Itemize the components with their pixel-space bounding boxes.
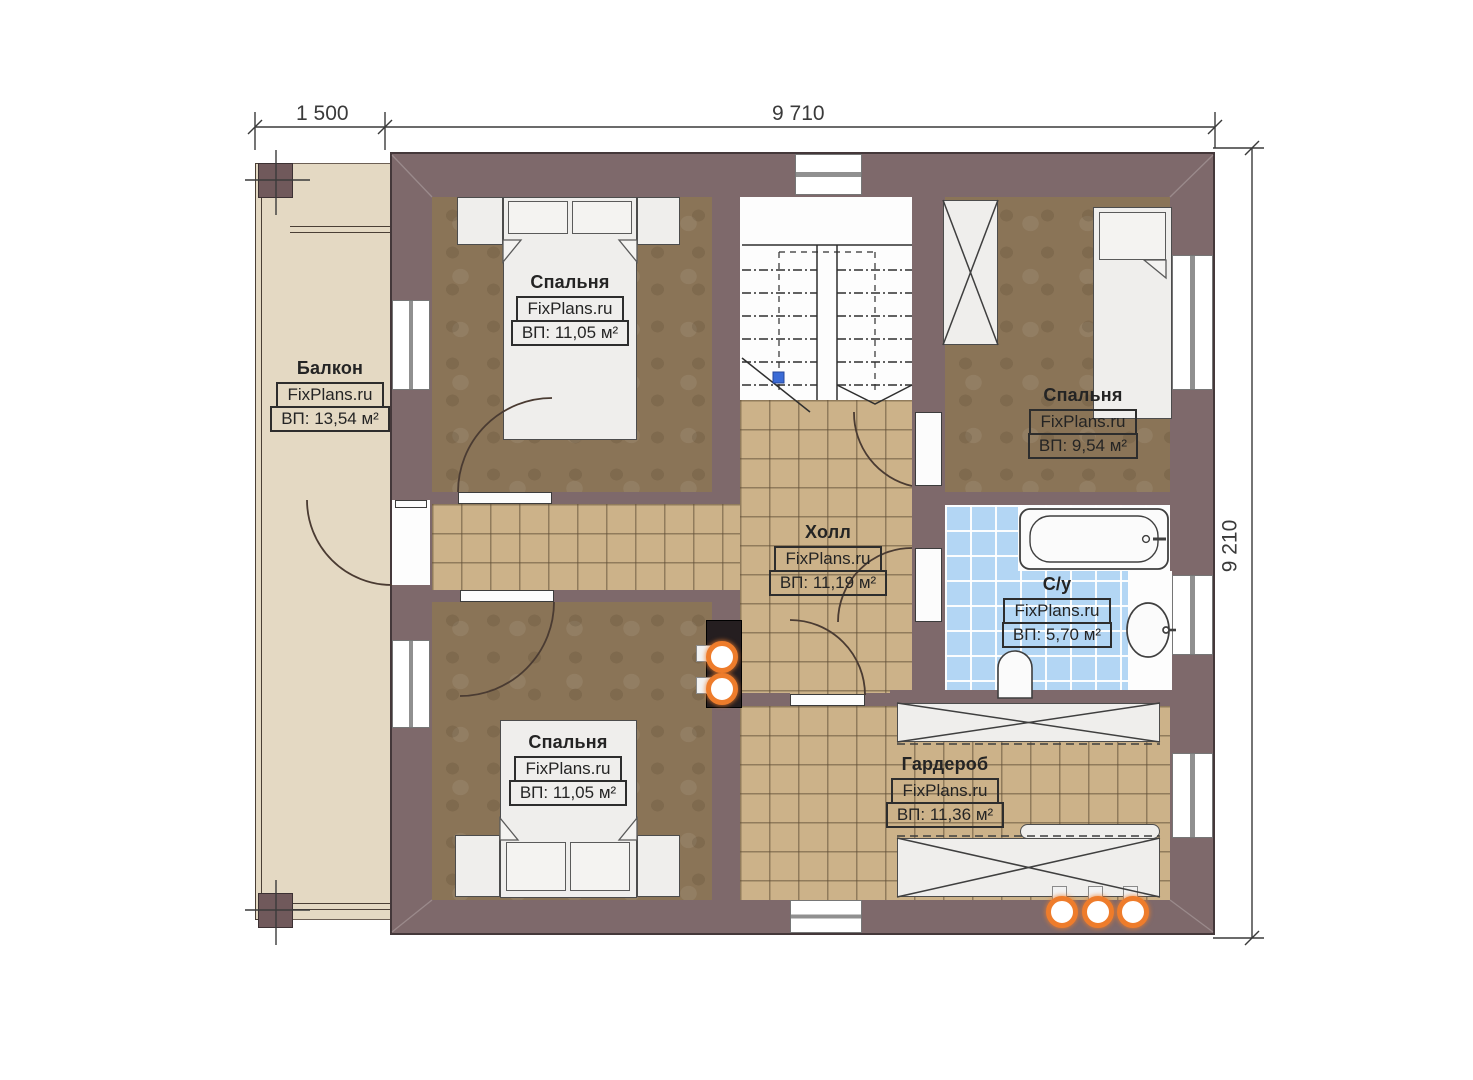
door-leaf-bedroomBL [460, 590, 554, 602]
room-label-bedroom-top-right: Спальня FixPlans.ru ВП: 9,54 м² [1018, 385, 1148, 459]
room-name: Балкон [297, 358, 363, 379]
balcony-railing-bottom [290, 903, 392, 910]
wall-light-icon-4 [1082, 896, 1114, 928]
wardrobe-closet-top [897, 703, 1160, 742]
room-label-balcony: Балкон FixPlans.ru ВП: 13,54 м² [268, 358, 392, 432]
wall-bedroomTL-south-b [552, 492, 740, 504]
wall-bathroom-north [945, 492, 1170, 505]
window-bedroomBL-left [392, 640, 430, 728]
pillow-tl-1 [508, 201, 568, 234]
watermark: FixPlans.ru [774, 546, 882, 572]
room-label-bedroom-top-left: Спальня FixPlans.ru ВП: 11,05 м² [506, 272, 634, 346]
room-area: ВП: 13,54 м² [270, 406, 390, 432]
room-area: ВП: 11,05 м² [509, 780, 627, 806]
watermark: FixPlans.ru [891, 778, 999, 804]
room-name: Спальня [528, 732, 607, 753]
room-area: ВП: 11,19 м² [769, 570, 887, 596]
wall-stair-east-b [912, 486, 945, 548]
door-leaf-wardrobe [790, 694, 865, 706]
room-area: ВП: 5,70 м² [1002, 622, 1112, 648]
balcony-railing-left [255, 163, 262, 920]
window-bathroom-right [1172, 575, 1213, 655]
room-name: Спальня [530, 272, 609, 293]
closet-bedroomTR [943, 200, 998, 345]
floor-plan-canvas: 1 500 9 710 9 210 [0, 0, 1473, 1080]
room-name: Гардероб [902, 754, 989, 775]
watermark: FixPlans.ru [1003, 598, 1111, 624]
wall-light-icon-2 [706, 673, 738, 705]
watermark: FixPlans.ru [516, 296, 624, 322]
wardrobe-rod [1020, 824, 1160, 839]
pillow-bl-2 [570, 842, 630, 891]
bathtub-platform [1018, 507, 1170, 571]
room-area: ВП: 11,05 м² [511, 320, 629, 346]
balcony-floor [258, 163, 392, 920]
dimension-house-height: 9 210 [1218, 520, 1242, 573]
dimension-house-width: 9 710 [772, 102, 825, 126]
wardrobe-closet-bottom [897, 838, 1160, 897]
wall-bedroomBL-north-a [432, 590, 460, 602]
door-leaf-balcony [395, 500, 427, 508]
wall-light-icon-1 [706, 641, 738, 673]
room-label-bathroom: С/у FixPlans.ru ВП: 5,70 м² [993, 574, 1121, 648]
wall-hall-south-b [865, 693, 890, 706]
hall-corridor-left-floor [432, 504, 740, 590]
nightstand-bl-left [455, 835, 500, 897]
window-bedroomTR-right [1172, 255, 1213, 390]
wall-light-icon-5 [1117, 896, 1149, 928]
door-leaf-bedroomTL [458, 492, 552, 504]
door-leaf-bedroomTR [915, 412, 942, 486]
window-stairwell-top [795, 154, 862, 195]
watermark: FixPlans.ru [1029, 409, 1137, 435]
pillow-tr [1099, 212, 1166, 260]
wall-stair-east-a [912, 197, 945, 412]
room-label-wardrobe: Гардероб FixPlans.ru ВП: 11,36 м² [878, 754, 1012, 828]
room-label-hall: Холл FixPlans.ru ВП: 11,19 м² [763, 522, 893, 596]
watermark: FixPlans.ru [514, 756, 622, 782]
pillow-tl-2 [572, 201, 632, 234]
wall-hall-south-a [740, 693, 790, 706]
balcony-column-top [258, 163, 293, 198]
wall-light-icon-3 [1046, 896, 1078, 928]
dimension-balcony-width: 1 500 [296, 102, 349, 126]
sink-counter [1128, 571, 1172, 690]
stairwell-floor [740, 197, 912, 400]
wall-bathroom-south [890, 690, 1170, 702]
window-wardrobe-bottom [790, 900, 862, 933]
pillow-bl-1 [506, 842, 566, 891]
room-name: Холл [805, 522, 851, 543]
room-name: С/у [1043, 574, 1072, 595]
room-area: ВП: 9,54 м² [1028, 433, 1138, 459]
room-area: ВП: 11,36 м² [886, 802, 1004, 828]
wall-bedroomTL-south-a [432, 492, 458, 504]
nightstand-tl-left [457, 197, 503, 245]
nightstand-tl-right [637, 197, 680, 245]
balcony-railing-top [290, 226, 392, 233]
balcony-door-opening [392, 500, 430, 585]
nightstand-bl-right [637, 835, 680, 897]
wall-spine-top [712, 197, 740, 504]
watermark: FixPlans.ru [276, 382, 384, 408]
window-bedroomTL-left [392, 300, 430, 390]
room-label-bedroom-bottom-left: Спальня FixPlans.ru ВП: 11,05 м² [504, 732, 632, 806]
window-wardrobe-right [1172, 753, 1213, 838]
door-leaf-bathroom [915, 548, 942, 622]
wall-bedroomBL-north-b [554, 590, 740, 602]
room-name: Спальня [1043, 385, 1122, 406]
balcony-column-bottom [258, 893, 293, 928]
